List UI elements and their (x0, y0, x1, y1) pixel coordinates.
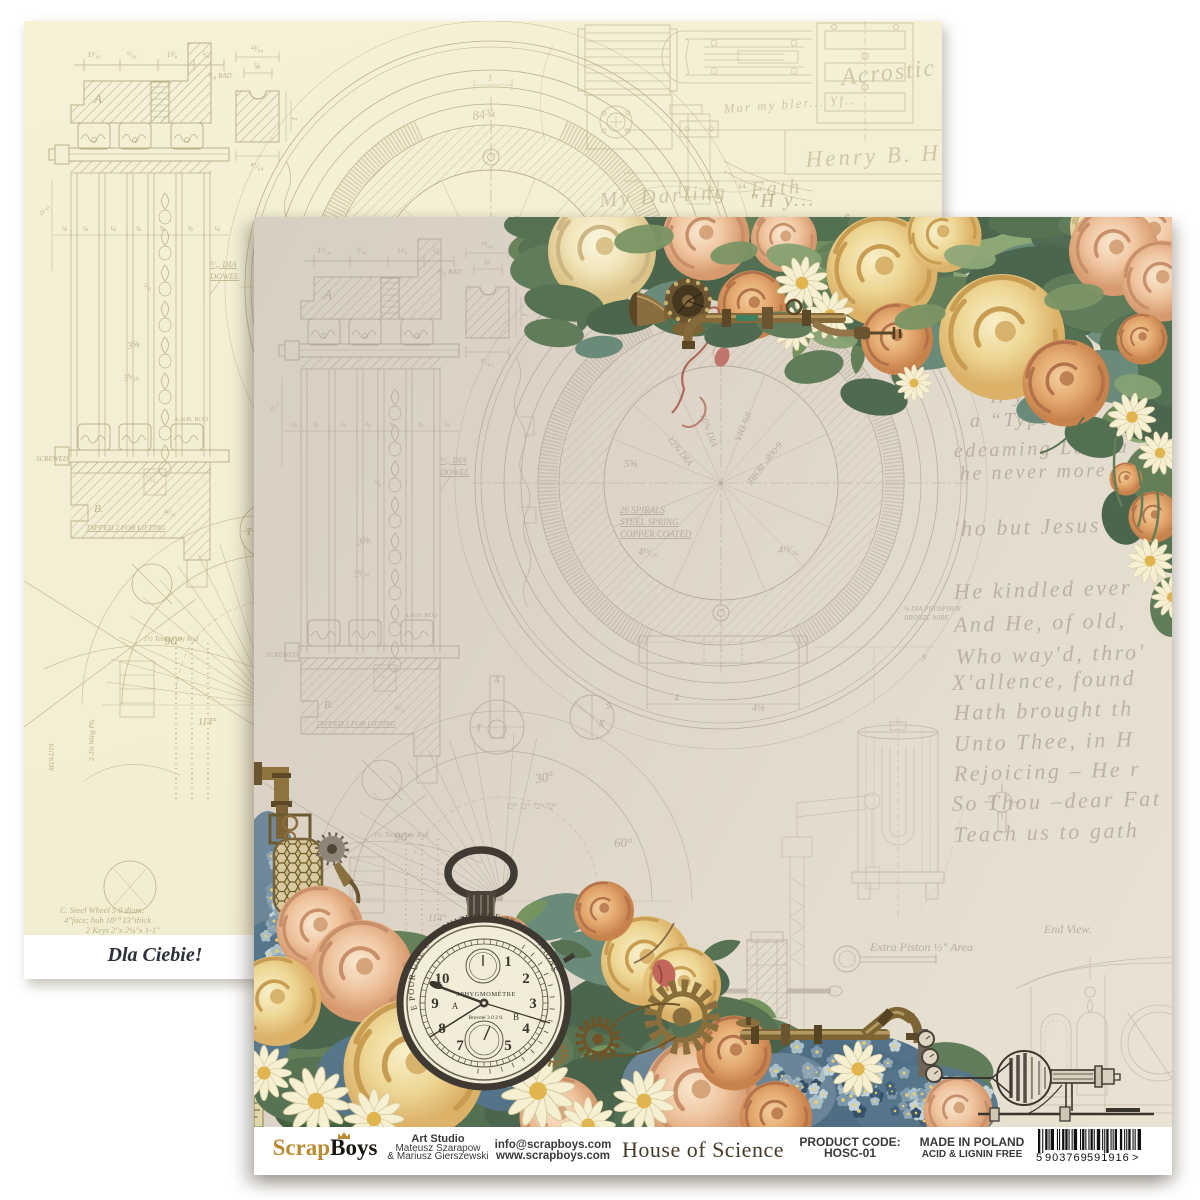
svg-text:9: 9 (431, 996, 439, 1012)
svg-text:>: > (1132, 1152, 1138, 1164)
svg-text:Breveté 3 0 2 0.: Breveté 3 0 2 0. (469, 1015, 505, 1021)
svg-text:903769: 903769 (1045, 1152, 1088, 1164)
svg-text:1: 1 (504, 954, 512, 970)
svg-text:591916: 591916 (1087, 1152, 1130, 1164)
svg-text:4: 4 (522, 1021, 530, 1037)
svg-text:2: 2 (522, 971, 530, 987)
svg-text:3: 3 (529, 996, 537, 1012)
svg-text:A: A (452, 1001, 459, 1011)
svg-text:5: 5 (504, 1038, 512, 1054)
svg-text:7: 7 (456, 1038, 464, 1054)
svg-text:5: 5 (1036, 1152, 1042, 1164)
